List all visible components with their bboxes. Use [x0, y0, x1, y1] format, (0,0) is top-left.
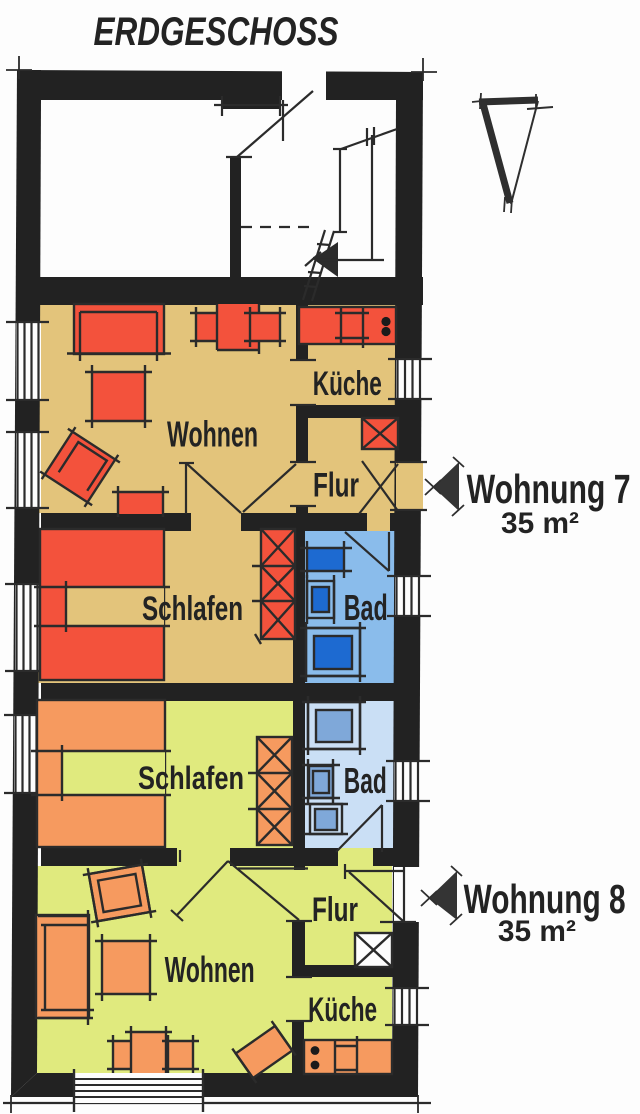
svg-text:Bad: Bad	[344, 760, 387, 801]
svg-text:Wohnung 7: Wohnung 7	[467, 466, 631, 512]
svg-text:Wohnen: Wohnen	[165, 949, 255, 990]
svg-text:Schlafen: Schlafen	[138, 760, 244, 796]
svg-text:Wohnen: Wohnen	[167, 414, 258, 455]
svg-text:Schlafen: Schlafen	[142, 590, 243, 628]
svg-text:Flur: Flur	[313, 467, 359, 505]
svg-text:Küche: Küche	[313, 365, 382, 403]
svg-text:ERDGESCHOSS: ERDGESCHOSS	[94, 10, 339, 54]
svg-text:Küche: Küche	[308, 991, 377, 1029]
svg-text:Bad: Bad	[344, 587, 388, 628]
svg-text:Flur: Flur	[312, 891, 358, 929]
svg-text:35 m²: 35 m²	[498, 915, 576, 948]
svg-text:35 m²: 35 m²	[501, 507, 579, 540]
